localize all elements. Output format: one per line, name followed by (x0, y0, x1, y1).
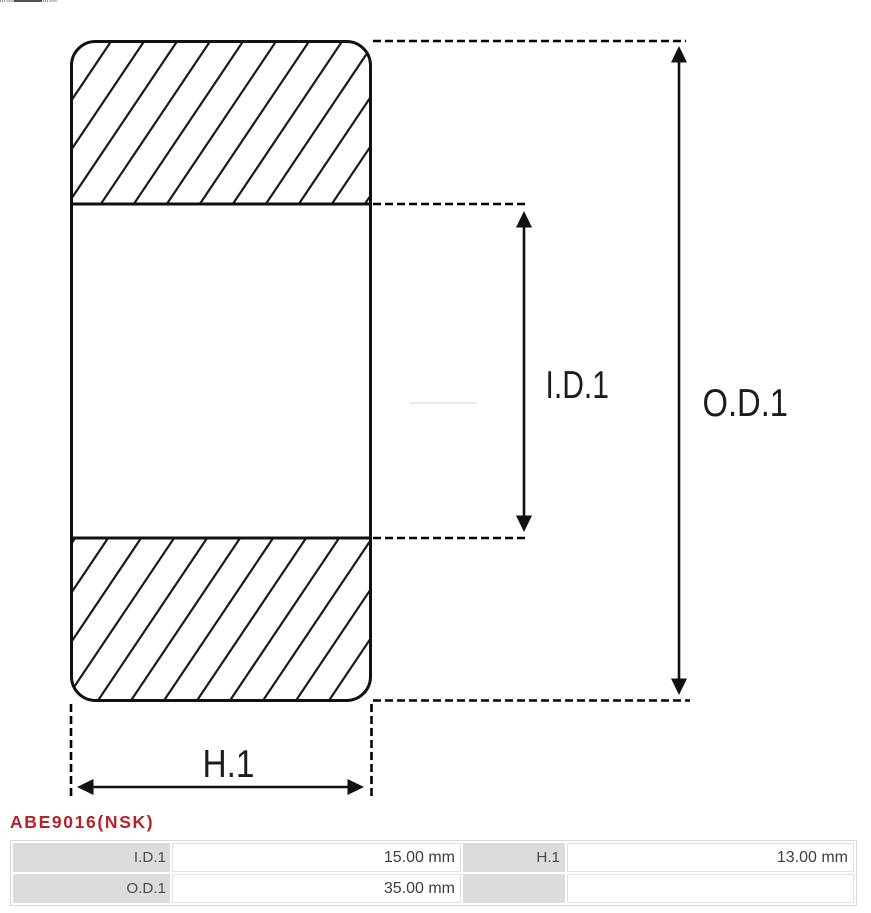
svg-text:O.D.1: O.D.1 (703, 382, 789, 425)
svg-text:H.1: H.1 (203, 743, 255, 786)
svg-text:I.D.1: I.D.1 (546, 364, 610, 407)
